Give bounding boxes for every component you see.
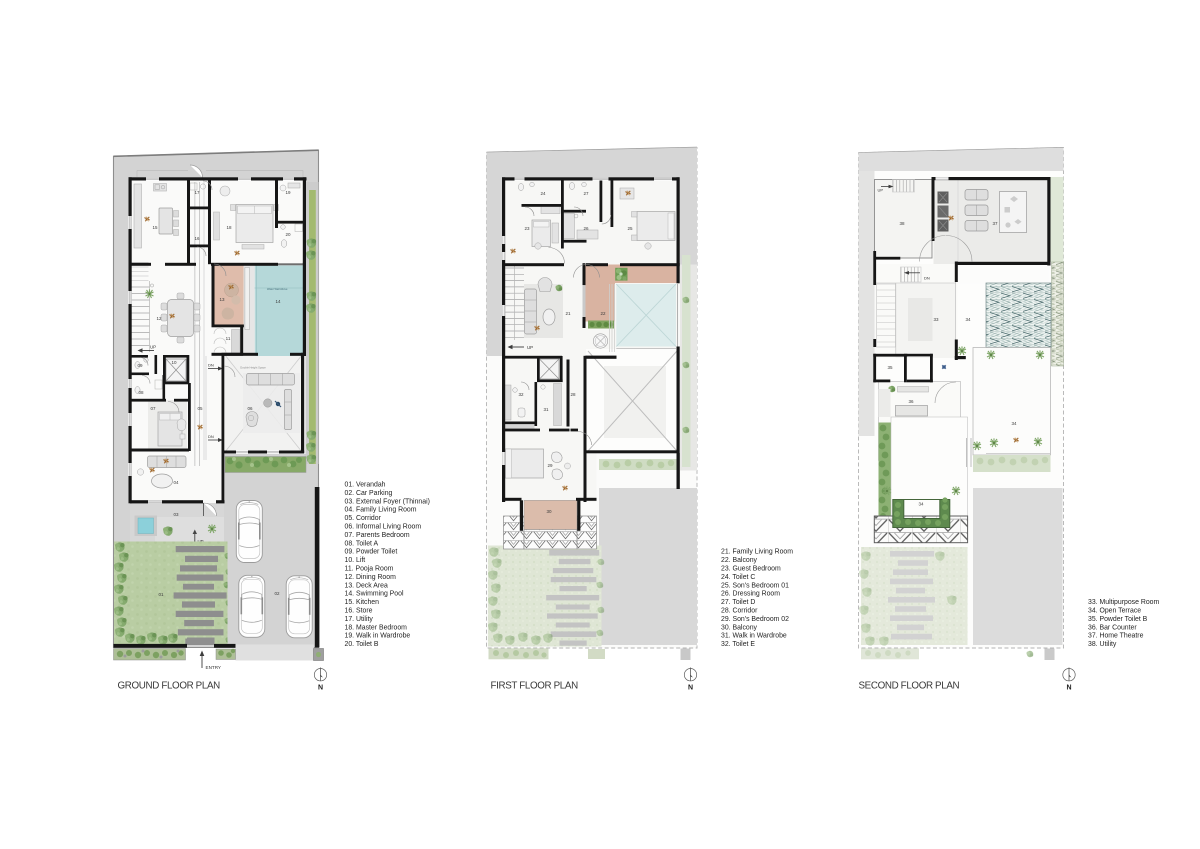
svg-text:21. Family Living Room: 21. Family Living Room xyxy=(721,549,793,556)
svg-text:24: 24 xyxy=(540,191,546,196)
svg-text:12: 12 xyxy=(156,316,162,321)
svg-text:20: 20 xyxy=(285,232,291,237)
svg-text:31: 31 xyxy=(543,407,549,412)
svg-text:01: 01 xyxy=(158,592,164,597)
svg-text:04: 04 xyxy=(173,480,179,485)
svg-text:19: 19 xyxy=(285,190,291,195)
svg-text:26. Dressing Room: 26. Dressing Room xyxy=(721,591,780,598)
svg-text:32: 32 xyxy=(518,392,524,397)
svg-text:15: 15 xyxy=(152,225,158,230)
svg-text:25. Son's Bedroom 01: 25. Son's Bedroom 01 xyxy=(721,582,789,589)
svg-text:02. Car Parking: 02. Car Parking xyxy=(345,490,393,497)
svg-text:31. Walk in Wardrobe: 31. Walk in Wardrobe xyxy=(721,633,787,640)
svg-text:05. Corridor: 05. Corridor xyxy=(345,515,382,522)
svg-text:UP: UP xyxy=(150,345,156,350)
svg-text:07. Parents Bedroom: 07. Parents Bedroom xyxy=(345,532,410,539)
svg-text:15. Kitchen: 15. Kitchen xyxy=(345,599,380,606)
svg-text:27: 27 xyxy=(583,191,589,196)
svg-text:06: 06 xyxy=(247,406,253,411)
svg-text:36: 36 xyxy=(908,399,914,404)
svg-text:36. Bar Counter: 36. Bar Counter xyxy=(1088,624,1137,631)
svg-text:10. Lift: 10. Lift xyxy=(345,557,366,564)
svg-text:23. Guest Bedroom: 23. Guest Bedroom xyxy=(721,566,781,573)
svg-text:DN: DN xyxy=(208,363,214,368)
svg-text:Double Height Space: Double Height Space xyxy=(240,366,266,370)
svg-text:29. Son's Bedroom 02: 29. Son's Bedroom 02 xyxy=(721,616,789,623)
svg-text:N: N xyxy=(318,685,323,692)
svg-text:14: 14 xyxy=(275,299,281,304)
svg-text:07: 07 xyxy=(150,406,156,411)
svg-text:09: 09 xyxy=(137,363,143,368)
svg-text:38: 38 xyxy=(899,221,905,226)
svg-text:37: 37 xyxy=(992,221,998,226)
svg-text:04. Family Living Room: 04. Family Living Room xyxy=(345,507,417,514)
svg-text:17. Utility: 17. Utility xyxy=(345,616,374,623)
svg-text:34: 34 xyxy=(918,502,924,507)
svg-text:N: N xyxy=(1066,685,1071,692)
svg-text:UP: UP xyxy=(527,345,533,350)
svg-text:Water Wall Above: Water Wall Above xyxy=(267,287,288,291)
svg-text:11: 11 xyxy=(226,336,231,341)
svg-text:SECOND FLOOR PLAN: SECOND FLOOR PLAN xyxy=(859,681,960,692)
svg-text:12. Dining Room: 12. Dining Room xyxy=(345,574,397,581)
svg-text:35: 35 xyxy=(887,365,893,370)
svg-text:37. Home Theatre: 37. Home Theatre xyxy=(1088,633,1144,640)
svg-text:25: 25 xyxy=(627,226,633,231)
svg-text:UP: UP xyxy=(878,188,884,193)
svg-text:ENTRY: ENTRY xyxy=(206,665,222,670)
svg-text:01. Verandah: 01. Verandah xyxy=(345,482,386,489)
svg-text:18: 18 xyxy=(226,225,232,230)
svg-text:33: 33 xyxy=(933,317,939,322)
svg-text:28. Corridor: 28. Corridor xyxy=(721,608,758,615)
svg-text:32. Toilet E: 32. Toilet E xyxy=(721,641,755,648)
svg-text:22. Balcony: 22. Balcony xyxy=(721,557,758,564)
svg-text:03. External Foyer (Thinnai): 03. External Foyer (Thinnai) xyxy=(345,498,430,505)
svg-text:29: 29 xyxy=(547,463,553,468)
svg-text:10: 10 xyxy=(171,360,177,365)
svg-text:24. Toilet C: 24. Toilet C xyxy=(721,574,755,581)
svg-text:16. Store: 16. Store xyxy=(345,608,373,615)
svg-text:19. Walk in Wardrobe: 19. Walk in Wardrobe xyxy=(345,633,411,640)
svg-text:21: 21 xyxy=(565,311,571,316)
svg-text:13: 13 xyxy=(219,297,225,302)
svg-text:34. Open Terrace: 34. Open Terrace xyxy=(1088,608,1141,615)
svg-text:08: 08 xyxy=(138,390,144,395)
svg-text:N: N xyxy=(688,685,693,692)
svg-text:22: 22 xyxy=(600,311,606,316)
svg-text:34: 34 xyxy=(965,317,971,322)
svg-text:28: 28 xyxy=(570,392,576,397)
svg-text:30. Balcony: 30. Balcony xyxy=(721,624,758,631)
svg-text:13. Deck Area: 13. Deck Area xyxy=(345,582,388,589)
svg-text:20. Toilet B: 20. Toilet B xyxy=(345,641,379,648)
svg-text:GROUND FLOOR PLAN: GROUND FLOOR PLAN xyxy=(118,681,221,692)
svg-text:08. Toilet A: 08. Toilet A xyxy=(345,540,379,547)
svg-text:03: 03 xyxy=(173,512,179,517)
svg-text:05: 05 xyxy=(197,406,203,411)
svg-text:DN: DN xyxy=(924,276,930,281)
svg-text:35. Powder Toilet B: 35. Powder Toilet B xyxy=(1088,616,1148,623)
svg-text:11. Pooja Room: 11. Pooja Room xyxy=(345,566,394,573)
svg-text:02: 02 xyxy=(274,591,280,596)
svg-text:38. Utility: 38. Utility xyxy=(1088,641,1117,648)
svg-text:06. Informal Living Room: 06. Informal Living Room xyxy=(345,524,422,531)
svg-text:30: 30 xyxy=(546,509,552,514)
svg-text:FIRST FLOOR PLAN: FIRST FLOOR PLAN xyxy=(491,681,579,692)
svg-text:26: 26 xyxy=(583,226,589,231)
svg-text:27. Toilet D: 27. Toilet D xyxy=(721,599,755,606)
svg-text:18. Master Bedroom: 18. Master Bedroom xyxy=(345,624,408,631)
svg-text:DN: DN xyxy=(208,434,214,439)
svg-text:09. Powder Toilet: 09. Powder Toilet xyxy=(345,549,398,556)
svg-text:17: 17 xyxy=(194,190,200,195)
svg-text:33. Multipurpose Room: 33. Multipurpose Room xyxy=(1088,599,1159,606)
svg-text:34: 34 xyxy=(1011,421,1017,426)
svg-text:14. Swimming Pool: 14. Swimming Pool xyxy=(345,591,404,598)
svg-text:16: 16 xyxy=(194,236,200,241)
svg-text:23: 23 xyxy=(524,226,530,231)
